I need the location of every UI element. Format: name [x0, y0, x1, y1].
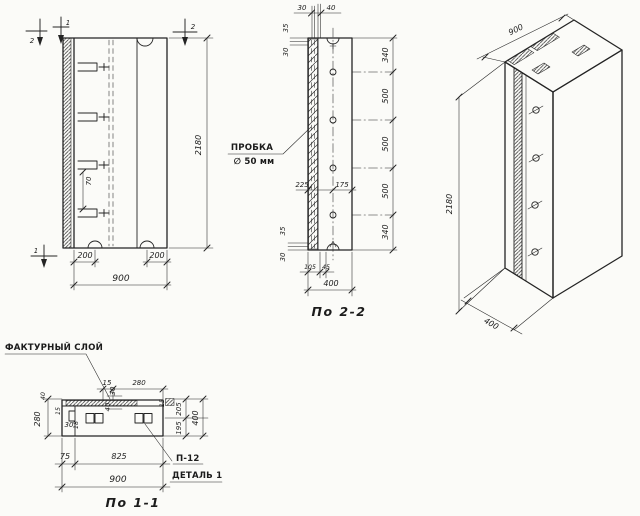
arrow-down-icon	[182, 37, 188, 46]
dim-bot-900: 900	[109, 475, 126, 485]
plug-axis-marks	[528, 106, 543, 256]
chain-dim: 340	[381, 224, 390, 239]
dim-mid-30: 30	[109, 386, 117, 395]
embed-detail	[95, 414, 103, 424]
technical-drawing-page: 2 1 2 1 70 2180	[0, 0, 640, 516]
chain-dim: 340	[381, 47, 390, 62]
marker-label: 2	[30, 37, 35, 45]
embed-detail	[86, 414, 94, 424]
rib-top-hatch	[508, 49, 534, 65]
dim-right-205: 205	[175, 402, 183, 416]
section-marker-2-top-right: 2	[173, 19, 197, 46]
chain-dim: 500	[381, 183, 390, 198]
chain-dim: 500	[381, 88, 390, 103]
dim-right-400: 400	[191, 410, 200, 425]
embed-brackets	[78, 63, 109, 217]
section-title-1-1: По 1-1	[106, 495, 161, 510]
dim-tick-lines	[290, 38, 308, 45]
facing-layer-section	[309, 39, 318, 249]
panel-outline	[63, 38, 167, 248]
dim-left-15: 15	[55, 407, 62, 415]
dim-225: 225	[295, 181, 309, 189]
dim-foot-left: 200	[77, 251, 92, 260]
dim-left-bot-30: 30	[279, 252, 287, 261]
plug-label-line2: ∅ 50 мм	[234, 157, 275, 167]
dim-105: 105	[304, 264, 316, 271]
dim-left-top-35: 35	[282, 23, 290, 32]
plug-label-line1: ПРОБКА	[231, 143, 273, 153]
embed-detail	[144, 414, 152, 424]
leader-line	[5, 354, 110, 399]
dim-left-bot-35: 35	[279, 226, 287, 235]
marker-label: 1	[66, 19, 70, 27]
inner-lines	[62, 406, 163, 436]
dim-height-lines	[459, 62, 505, 311]
drawing-canvas: 2 1 2 1 70 2180	[0, 0, 640, 516]
chain-dim: 500	[381, 136, 390, 151]
dim-width-lines	[304, 252, 356, 296]
dim-mid-40: 40	[104, 402, 112, 411]
detail-code-label: П-12	[176, 454, 200, 464]
dim-depth: 400	[482, 316, 500, 331]
dim-top-30: 30	[298, 4, 307, 12]
dim-height: 2180	[194, 135, 203, 155]
hidden-rib-lines	[109, 40, 113, 246]
section-marker-2-top: 2	[26, 19, 47, 46]
dim-width: 900	[112, 274, 129, 284]
dim-right-15: 15	[159, 399, 166, 407]
dim-tick-lines	[288, 243, 308, 250]
side-face	[505, 62, 553, 298]
dim-left-40: 40	[40, 392, 47, 400]
dim-top-280: 280	[132, 379, 146, 387]
dim-175: 175	[335, 181, 349, 189]
dim-left-18: 18	[73, 421, 80, 429]
dim-top-15: 15	[103, 379, 112, 387]
texture-layer-label: ФАКТУРНЫЙ СЛОЙ	[5, 341, 103, 353]
front-face	[553, 50, 622, 298]
front-view: 2 1 2 1 70 2180	[26, 17, 213, 290]
section-view-2-2: 30 40 35 30 35 30 225 175 340 500 500 50…	[228, 4, 397, 319]
dim-width: 900	[507, 22, 525, 37]
section-view-1-1: 15 280 30 40 280 40 15 30 18 15 205 195 …	[5, 341, 222, 510]
rib-strip	[514, 68, 522, 279]
dim-height-lines	[169, 38, 213, 248]
facing-layer-strip	[63, 38, 71, 248]
arrow-down-icon	[41, 259, 47, 268]
dim-left-lines	[44, 399, 62, 436]
dim-bot-75: 75	[60, 452, 70, 461]
rib-top-hatch	[531, 33, 560, 51]
section-marker-1-bottom: 1	[31, 245, 57, 268]
dim-foot-right: 200	[149, 251, 164, 260]
section-title-2-2: По 2-2	[312, 304, 367, 319]
dim-bracket-gap: 70	[85, 176, 93, 185]
lifting-slot	[532, 63, 550, 74]
dim-left-280: 280	[33, 411, 42, 426]
dim-45: 45	[322, 264, 330, 271]
marker-label: 2	[191, 23, 196, 31]
detail-name-label: ДЕТАЛЬ 1	[172, 471, 222, 481]
recess-arcs	[88, 38, 154, 248]
dim-bot-825: 825	[111, 452, 126, 461]
dim-right-195: 195	[175, 421, 183, 435]
isometric-view: 900 2180 400	[445, 14, 622, 334]
dim-height: 2180	[445, 194, 454, 214]
dim-depth-lines	[461, 268, 553, 334]
dim-width: 400	[323, 279, 338, 288]
dim-top-40: 40	[327, 4, 336, 12]
loop-riser-lines	[312, 4, 321, 38]
lifting-slot	[572, 45, 590, 56]
marker-label: 1	[34, 247, 38, 255]
edge-insert-hatch	[166, 399, 175, 406]
embed-detail	[135, 414, 143, 424]
arrow-down-icon	[37, 37, 43, 46]
texture-layer-hatch	[66, 401, 137, 406]
dim-left-top-30: 30	[282, 47, 290, 56]
